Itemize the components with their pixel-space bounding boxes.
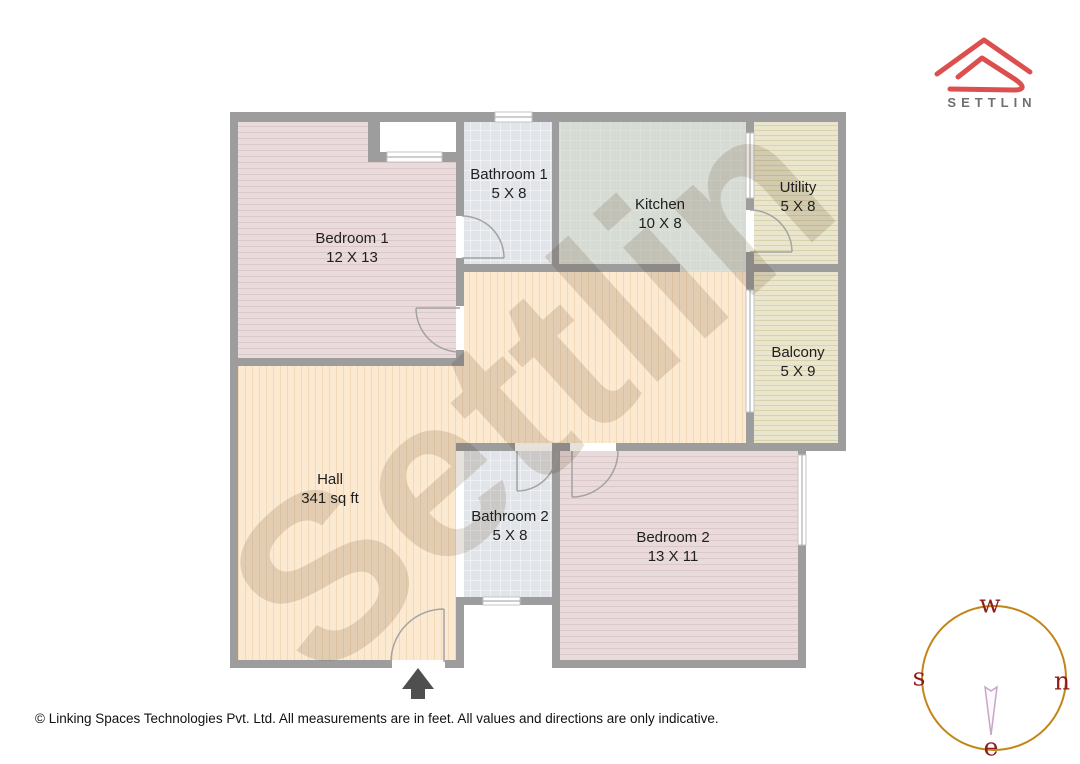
compass-needle-icon xyxy=(985,687,997,735)
room-label-bathroom-1: Bathroom 1 5 X 8 xyxy=(434,165,584,203)
room-dimensions: 5 X 9 xyxy=(723,362,873,381)
room-name: Bathroom 2 xyxy=(435,507,585,526)
bedroom-2-window xyxy=(798,455,806,545)
room-name: Bathroom 1 xyxy=(434,165,584,184)
floor-plan-page: Settlin Bedroom 1 12 X 13 Bathroom 1 5 X… xyxy=(0,0,1080,764)
compass-west-label: w xyxy=(979,590,1000,619)
compass-south-label: s xyxy=(913,663,926,692)
compass-rose-icon xyxy=(922,606,1066,750)
bedroom-1-window xyxy=(387,152,442,162)
copyright-notice: © Linking Spaces Technologies Pvt. Ltd. … xyxy=(35,711,719,726)
floor-plan-drawing xyxy=(0,0,1080,764)
room-dimensions: 5 X 8 xyxy=(434,184,584,203)
room-dimensions: 341 sq ft xyxy=(255,489,405,508)
compass-circle xyxy=(922,606,1066,750)
room-name: Balcony xyxy=(723,343,873,362)
room-name: Bedroom 2 xyxy=(598,528,748,547)
hall-corridor-floor xyxy=(456,272,746,443)
room-label-bedroom-1: Bedroom 1 12 X 13 xyxy=(277,229,427,267)
room-label-bedroom-2: Bedroom 2 13 X 11 xyxy=(598,528,748,566)
entrance-arrow-icon xyxy=(402,668,434,699)
room-name: Utility xyxy=(723,178,873,197)
room-label-bathroom-2: Bathroom 2 5 X 8 xyxy=(435,507,585,545)
roof-logo-icon xyxy=(937,40,1030,90)
room-label-utility: Utility 5 X 8 xyxy=(723,178,873,216)
room-name: Bedroom 1 xyxy=(277,229,427,248)
compass-north-label: n xyxy=(1054,667,1070,696)
bathroom-2-window xyxy=(483,597,520,605)
room-label-hall: Hall 341 sq ft xyxy=(255,470,405,508)
room-dimensions: 5 X 8 xyxy=(435,526,585,545)
shaft-notch xyxy=(380,122,456,152)
room-name: Hall xyxy=(255,470,405,489)
room-dimensions: 10 X 8 xyxy=(585,214,735,233)
room-dimensions: 13 X 11 xyxy=(598,547,748,566)
room-dimensions: 5 X 8 xyxy=(723,197,873,216)
room-label-kitchen: Kitchen 10 X 8 xyxy=(585,195,735,233)
bathroom-1-window xyxy=(495,112,532,122)
room-name: Kitchen xyxy=(585,195,735,214)
brand-wordmark: SETTLIN xyxy=(926,95,1058,110)
room-label-balcony: Balcony 5 X 9 xyxy=(723,343,873,381)
room-dimensions: 12 X 13 xyxy=(277,248,427,267)
compass-east-label: e xyxy=(984,733,999,762)
hall-floor xyxy=(238,366,456,660)
